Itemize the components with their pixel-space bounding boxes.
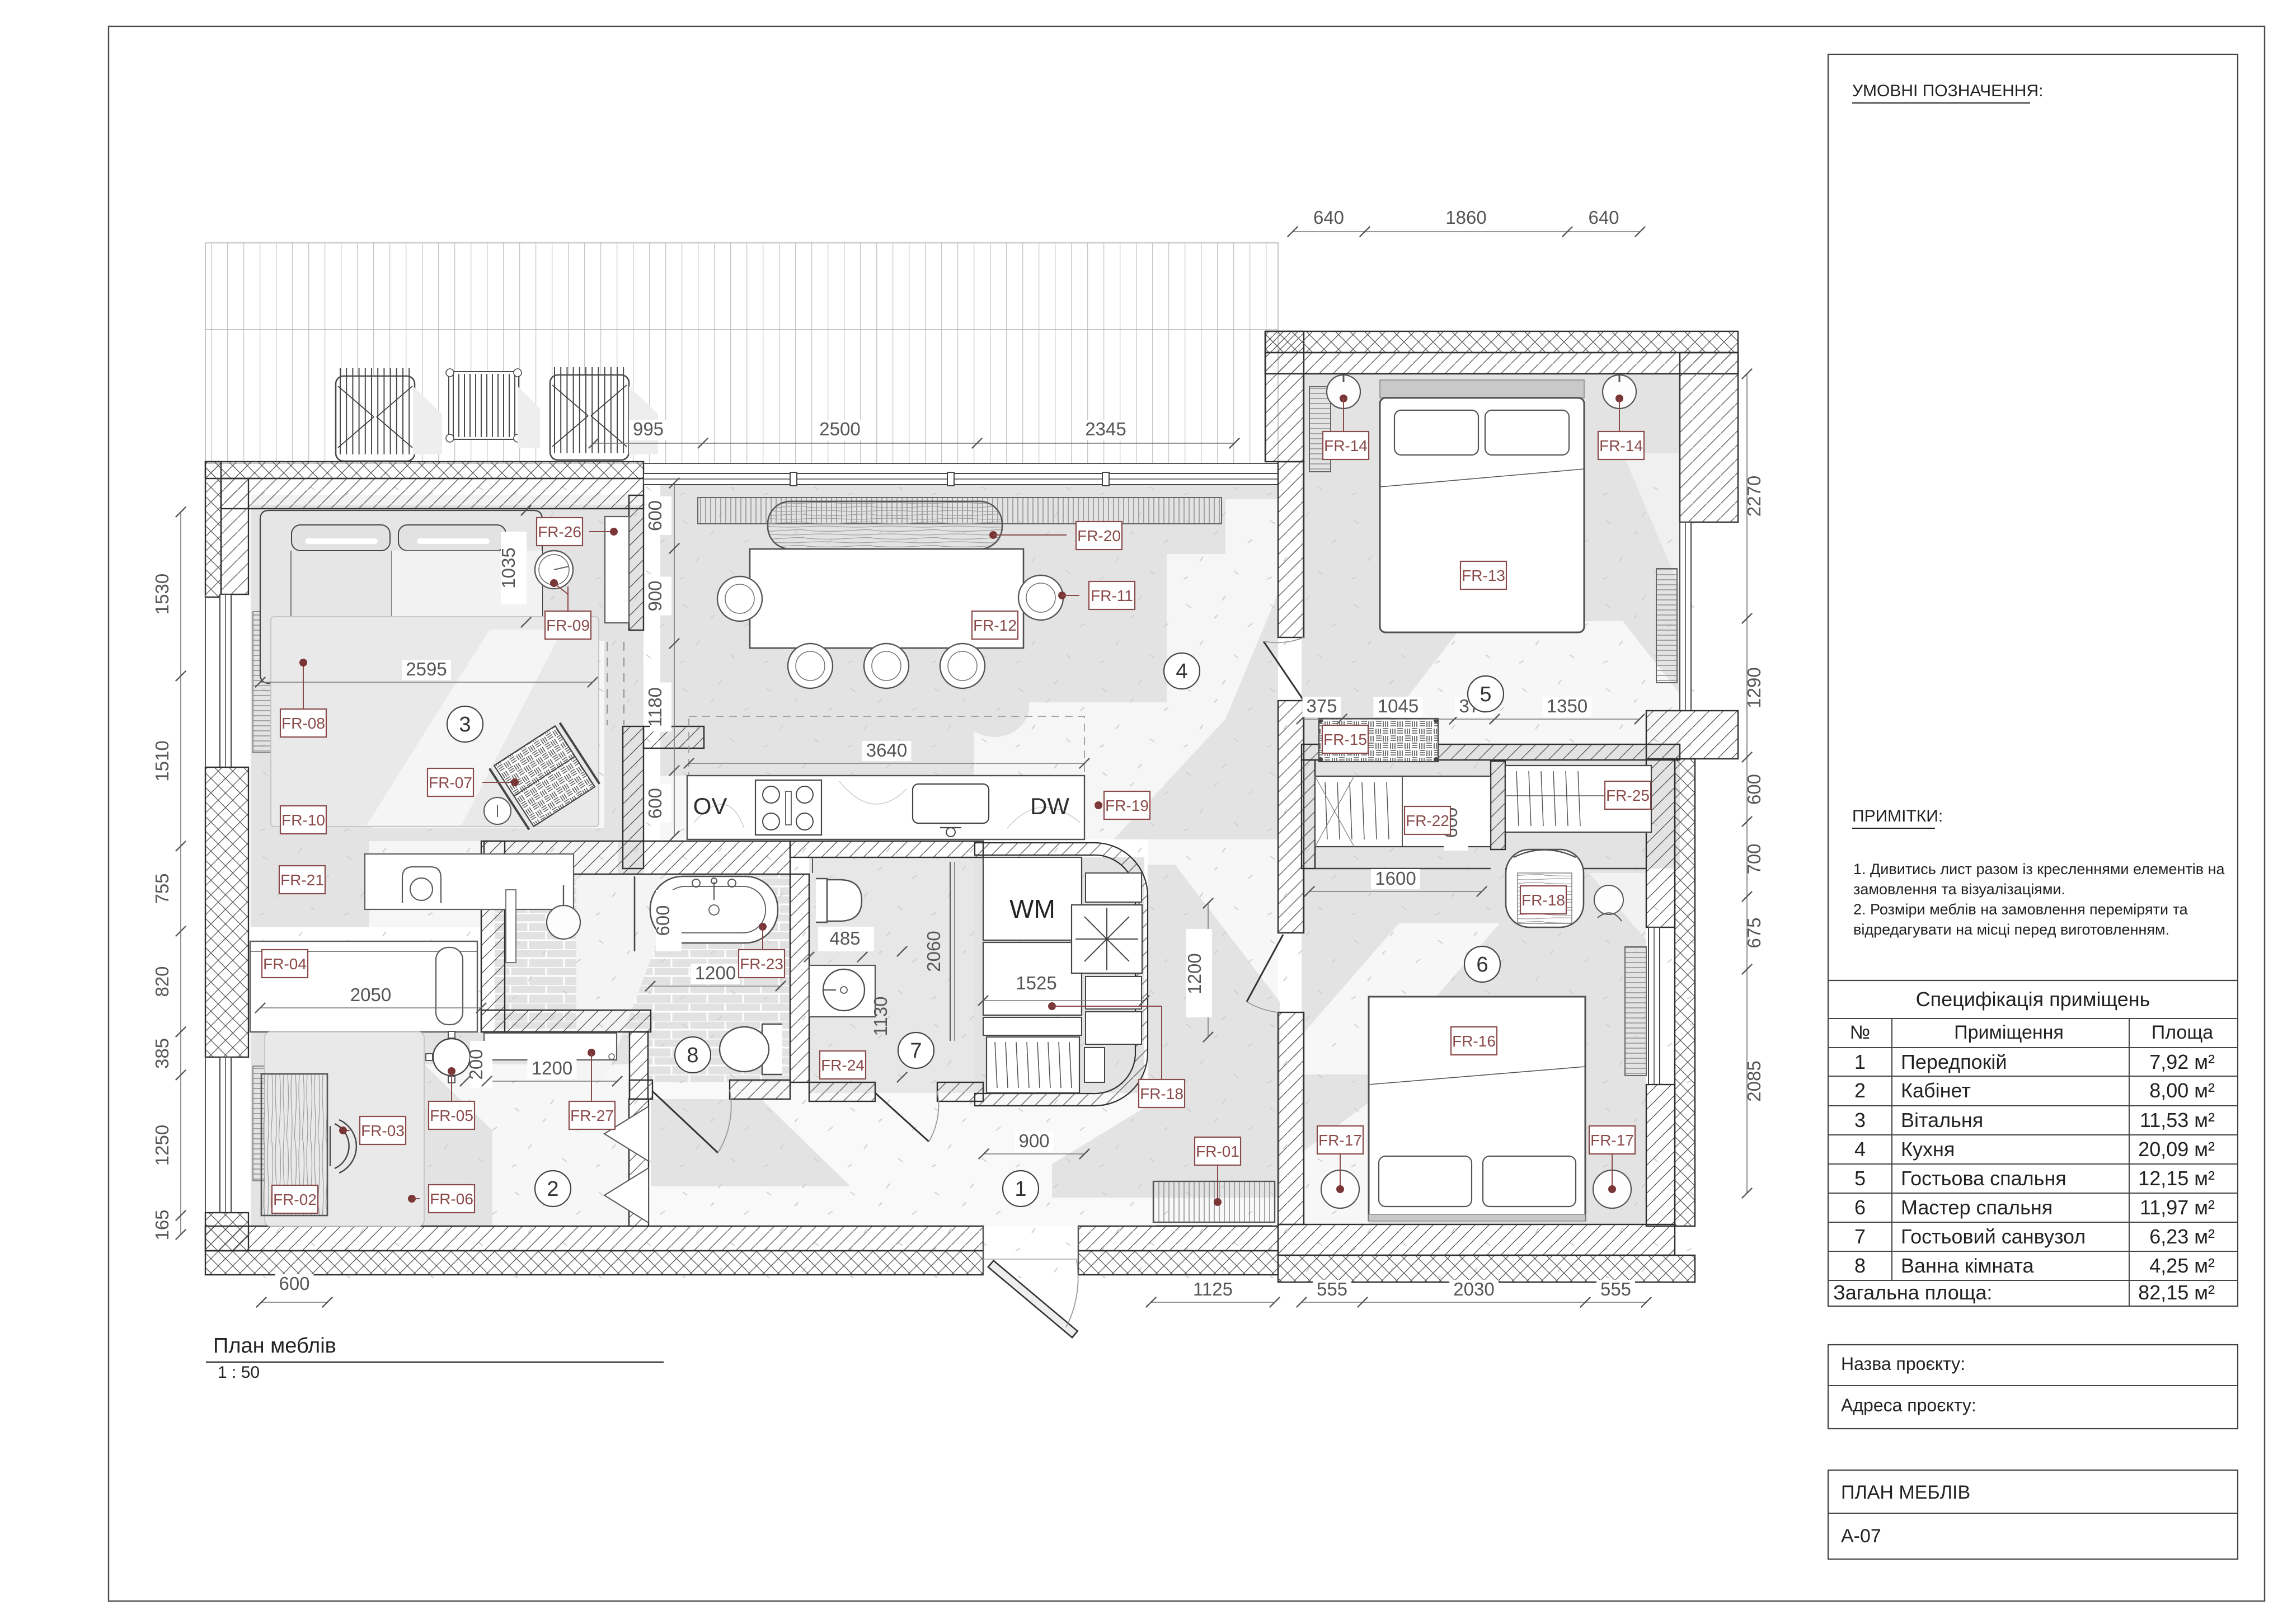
svg-text:4,25 м²: 4,25 м² [2149, 1254, 2215, 1277]
svg-text:375: 375 [1306, 696, 1337, 716]
svg-text:755: 755 [152, 873, 172, 904]
svg-text:8: 8 [687, 1044, 698, 1067]
svg-text:3640: 3640 [866, 740, 907, 761]
svg-text:1. Дивитись лист разом із крес: 1. Дивитись лист разом із кресленнями ел… [1853, 861, 2225, 877]
svg-text:555: 555 [1600, 1279, 1631, 1299]
svg-text:11,53 м²: 11,53 м² [2140, 1109, 2215, 1132]
svg-text:FR-10: FR-10 [281, 811, 325, 829]
svg-text:6: 6 [1476, 953, 1488, 977]
svg-text:1200: 1200 [532, 1058, 572, 1078]
svg-text:FR-20: FR-20 [1077, 527, 1121, 545]
svg-text:640: 640 [1588, 207, 1619, 228]
svg-text:№: № [1850, 1022, 1870, 1043]
svg-text:Гостьова спальня: Гостьова спальня [1901, 1167, 2066, 1190]
svg-text:FR-17: FR-17 [1318, 1132, 1362, 1149]
svg-text:FR-18: FR-18 [1140, 1085, 1183, 1102]
svg-text:2060: 2060 [923, 931, 944, 971]
svg-text:2500: 2500 [819, 419, 860, 439]
svg-text:FR-18: FR-18 [1521, 891, 1565, 909]
svg-text:Специфікація приміщень: Специфікація приміщень [1916, 988, 2150, 1011]
svg-text:1200: 1200 [695, 963, 736, 983]
svg-text:2: 2 [1854, 1079, 1866, 1102]
svg-text:FR-25: FR-25 [1606, 787, 1650, 804]
svg-text:820: 820 [152, 966, 172, 997]
svg-text:1250: 1250 [152, 1125, 172, 1166]
svg-text:7: 7 [1854, 1225, 1866, 1248]
svg-text:1: 1 [1015, 1177, 1026, 1201]
svg-text:Загальна площа:: Загальна площа: [1833, 1281, 1992, 1304]
svg-text:675: 675 [1744, 917, 1764, 948]
svg-text:385: 385 [152, 1038, 172, 1069]
svg-text:FR-14: FR-14 [1324, 437, 1368, 454]
svg-text:FR-11: FR-11 [1091, 587, 1133, 604]
svg-text:FR-09: FR-09 [546, 617, 590, 634]
svg-text:8: 8 [1854, 1254, 1866, 1277]
svg-text:FR-16: FR-16 [1452, 1032, 1496, 1050]
svg-text:FR-21: FR-21 [280, 871, 324, 889]
svg-text:1350: 1350 [1547, 696, 1588, 716]
svg-text:FR-12: FR-12 [973, 617, 1017, 634]
svg-text:600: 600 [279, 1273, 309, 1294]
svg-text:600: 600 [1744, 774, 1764, 805]
svg-text:165: 165 [152, 1209, 172, 1240]
svg-text:12,15 м²: 12,15 м² [2138, 1167, 2215, 1190]
svg-text:FR-23: FR-23 [740, 955, 783, 973]
svg-text:FR-01: FR-01 [1196, 1143, 1239, 1160]
svg-text:995: 995 [633, 419, 664, 439]
svg-text:1045: 1045 [1378, 696, 1419, 716]
svg-text:20,09 м²: 20,09 м² [2138, 1138, 2215, 1161]
svg-text:WM: WM [1009, 894, 1055, 923]
svg-text:5: 5 [1854, 1167, 1866, 1190]
svg-text:11,97 м²: 11,97 м² [2140, 1196, 2215, 1219]
svg-text:DW: DW [1030, 793, 1069, 819]
svg-text:Гостьовий санвузол: Гостьовий санвузол [1901, 1225, 2086, 1248]
svg-text:Приміщення: Приміщення [1954, 1022, 2064, 1043]
svg-text:FR-22: FR-22 [1406, 812, 1449, 829]
svg-text:ПРИМІТКИ:: ПРИМІТКИ: [1852, 807, 1943, 825]
svg-text:4: 4 [1176, 660, 1187, 683]
svg-text:Адреса проєкту:: Адреса проєкту: [1841, 1395, 1976, 1415]
svg-text:6: 6 [1854, 1196, 1866, 1219]
svg-text:1125: 1125 [1193, 1279, 1233, 1299]
svg-text:Передпокій: Передпокій [1901, 1050, 2007, 1073]
svg-text:А-07: А-07 [1841, 1526, 1881, 1547]
svg-text:5: 5 [1480, 683, 1491, 706]
svg-text:900: 900 [1018, 1130, 1049, 1151]
svg-text:FR-04: FR-04 [263, 955, 307, 973]
svg-text:відредагувати на місці перед в: відредагувати на місці перед виготовленн… [1853, 921, 2169, 938]
svg-text:замовлення та візуалізаціями.: замовлення та візуалізаціями. [1853, 881, 2065, 898]
svg-text:1510: 1510 [152, 740, 172, 781]
svg-text:1600: 1600 [1375, 868, 1416, 889]
svg-text:FR-13: FR-13 [1462, 567, 1505, 584]
svg-text:900: 900 [645, 580, 665, 611]
svg-text:1035: 1035 [498, 547, 519, 588]
svg-text:2595: 2595 [406, 659, 447, 679]
svg-text:1290: 1290 [1744, 667, 1764, 708]
svg-text:3: 3 [1854, 1109, 1866, 1132]
svg-text:FR-06: FR-06 [430, 1190, 473, 1208]
svg-text:2085: 2085 [1744, 1060, 1764, 1101]
svg-text:1200: 1200 [1184, 953, 1205, 994]
svg-text:FR-19: FR-19 [1105, 797, 1149, 814]
svg-text:2270: 2270 [1744, 476, 1764, 517]
svg-text:FR-24: FR-24 [821, 1057, 865, 1074]
svg-text:УМОВНІ ПОЗНАЧЕННЯ:: УМОВНІ ПОЗНАЧЕННЯ: [1852, 82, 2043, 100]
svg-text:FR-14: FR-14 [1599, 437, 1643, 454]
svg-text:7,92 м²: 7,92 м² [2149, 1050, 2215, 1073]
svg-text:FR-02: FR-02 [273, 1191, 317, 1208]
svg-text:FR-17: FR-17 [1590, 1132, 1634, 1149]
svg-text:FR-26: FR-26 [538, 523, 581, 541]
svg-text:Назва проєкту:: Назва проєкту: [1841, 1354, 1965, 1374]
svg-text:600: 600 [645, 788, 665, 819]
svg-text:FR-05: FR-05 [430, 1107, 473, 1124]
svg-text:FR-27: FR-27 [570, 1107, 614, 1124]
svg-text:640: 640 [1313, 207, 1344, 228]
svg-text:1130: 1130 [870, 997, 891, 1036]
svg-text:4: 4 [1854, 1138, 1866, 1161]
svg-text:1180: 1180 [645, 687, 665, 727]
svg-text:Кухня: Кухня [1901, 1138, 1955, 1161]
svg-text:1860: 1860 [1445, 207, 1486, 228]
svg-text:600: 600 [645, 500, 665, 531]
svg-text:2030: 2030 [1453, 1279, 1494, 1299]
svg-text:Ванна кімната: Ванна кімната [1901, 1254, 2035, 1277]
svg-text:1530: 1530 [152, 574, 172, 614]
svg-text:FR-08: FR-08 [281, 715, 325, 732]
svg-text:485: 485 [829, 928, 860, 949]
svg-text:600: 600 [652, 905, 673, 936]
svg-text:Мастер спальня: Мастер спальня [1901, 1196, 2053, 1219]
svg-text:OV: OV [693, 793, 727, 819]
svg-text:Площа: Площа [2152, 1022, 2214, 1043]
svg-text:FR-07: FR-07 [429, 774, 472, 791]
svg-text:Кабінет: Кабінет [1901, 1079, 1971, 1102]
svg-text:3: 3 [459, 713, 471, 736]
svg-text:2050: 2050 [350, 984, 391, 1005]
svg-text:1 : 50: 1 : 50 [218, 1363, 260, 1382]
svg-text:82,15 м²: 82,15 м² [2138, 1281, 2215, 1304]
svg-text:FR-15: FR-15 [1323, 731, 1367, 748]
svg-text:ПЛАН МЕБЛІВ: ПЛАН МЕБЛІВ [1841, 1482, 1970, 1503]
svg-text:1: 1 [1854, 1050, 1866, 1073]
svg-text:555: 555 [1317, 1279, 1347, 1299]
svg-text:2: 2 [547, 1177, 558, 1201]
svg-text:6,23 м²: 6,23 м² [2149, 1225, 2215, 1248]
svg-text:200: 200 [466, 1049, 486, 1079]
svg-text:8,00 м²: 8,00 м² [2149, 1079, 2215, 1102]
svg-text:2. Розміри меблів на замовленн: 2. Розміри меблів на замовлення переміря… [1853, 901, 2188, 918]
svg-text:1525: 1525 [1016, 973, 1056, 993]
svg-text:FR-03: FR-03 [361, 1122, 405, 1139]
svg-text:План меблів: План меблів [213, 1334, 336, 1358]
svg-text:700: 700 [1744, 843, 1764, 874]
svg-text:7: 7 [910, 1039, 922, 1063]
svg-text:Вітальня: Вітальня [1901, 1109, 1983, 1132]
svg-text:2345: 2345 [1085, 419, 1126, 439]
